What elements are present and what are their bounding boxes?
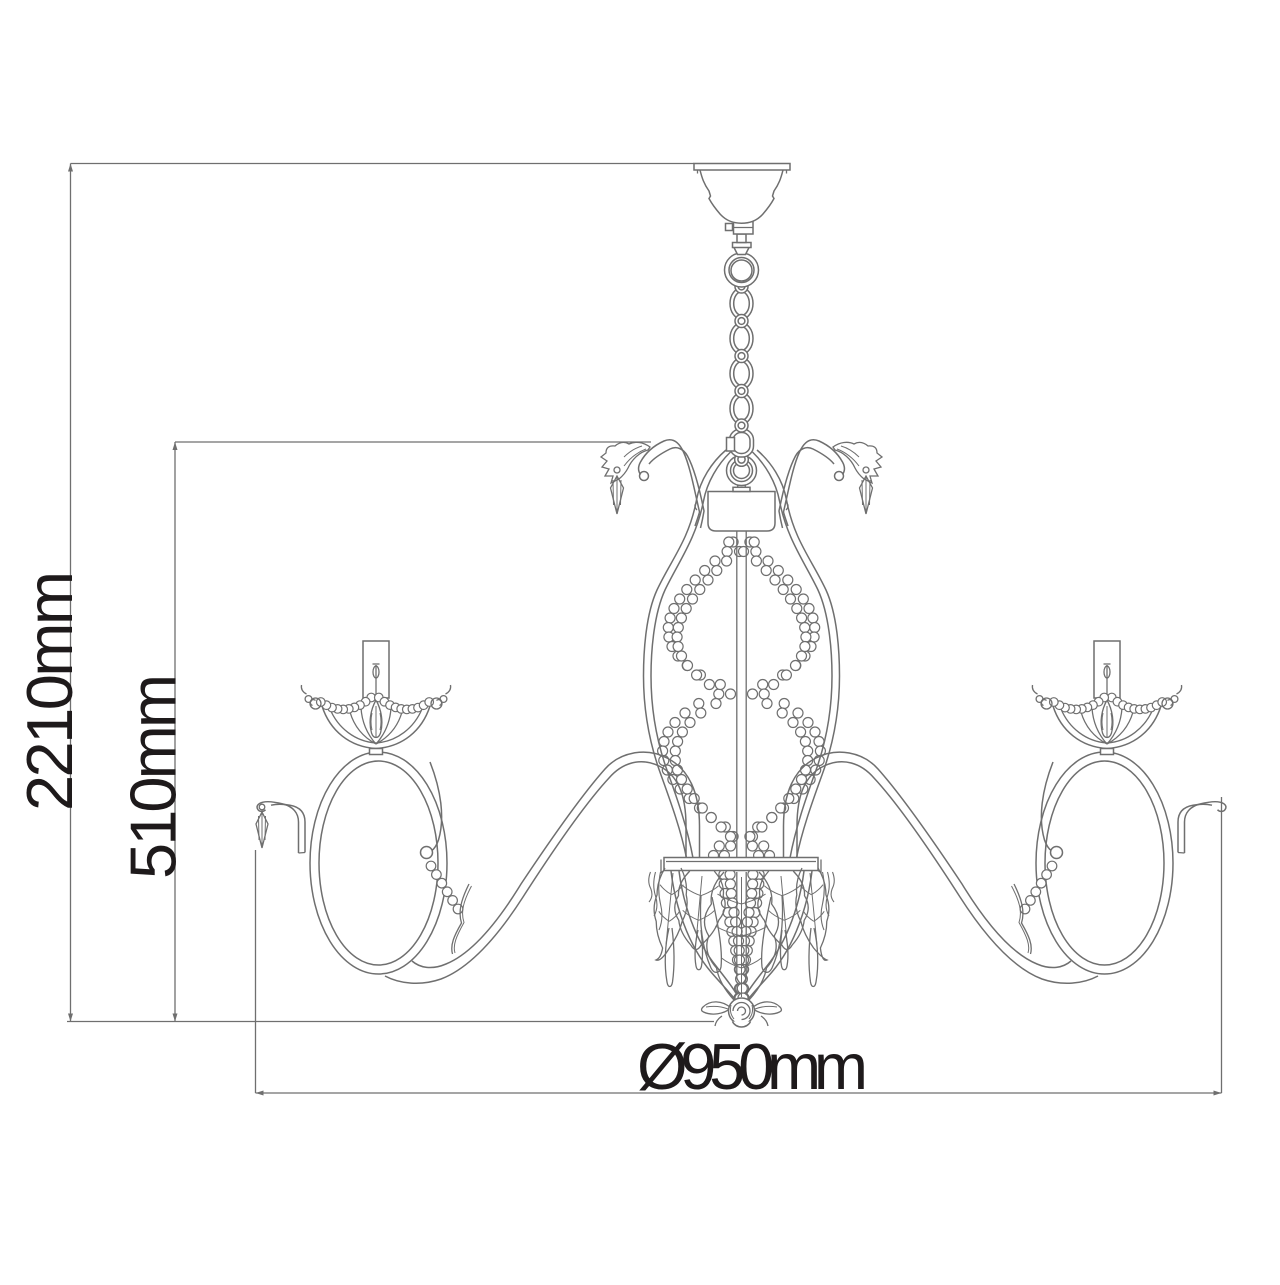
svg-text:510mm: 510mm [117, 674, 190, 879]
svg-text:Ø950mm: Ø950mm [637, 1030, 868, 1103]
svg-text:2210mm: 2210mm [13, 571, 86, 811]
